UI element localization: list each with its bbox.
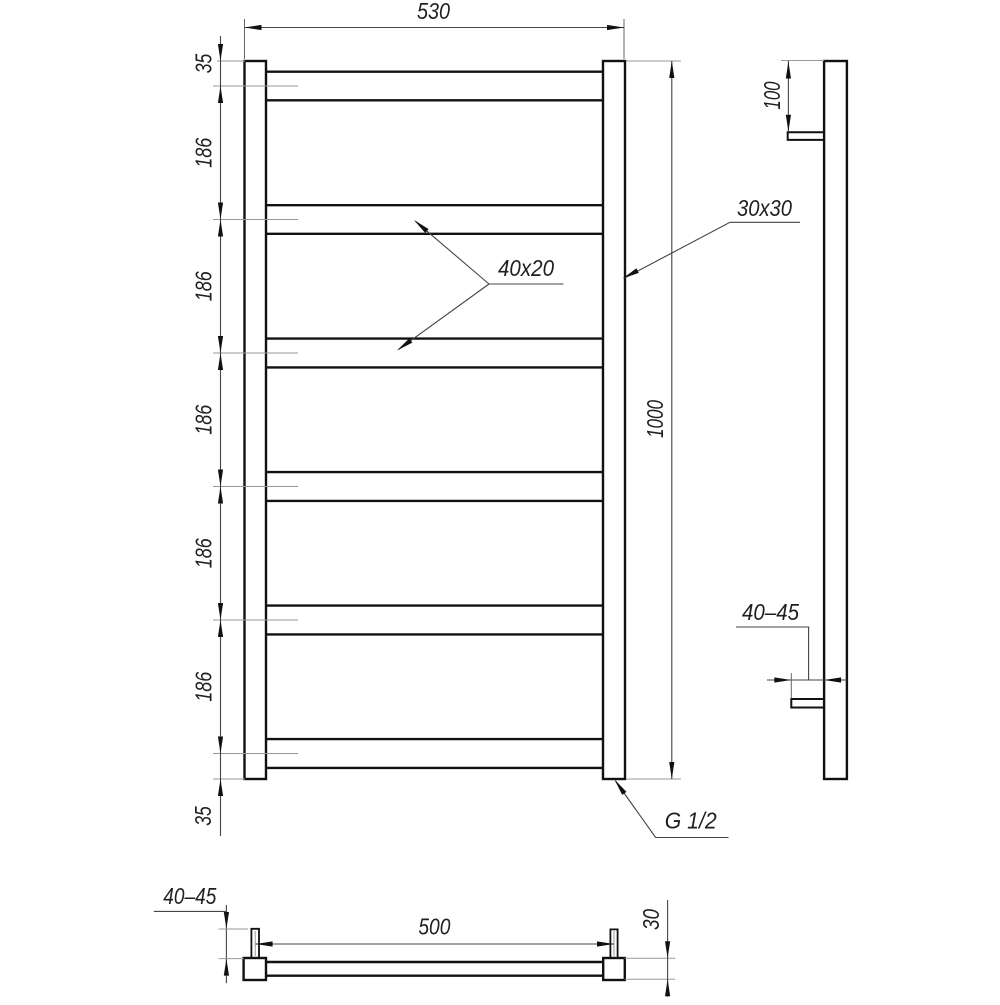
svg-text:35: 35 bbox=[190, 806, 216, 826]
svg-text:40–45: 40–45 bbox=[163, 883, 216, 909]
svg-text:500: 500 bbox=[418, 914, 450, 940]
svg-text:G 1/2: G 1/2 bbox=[665, 808, 717, 834]
svg-text:186: 186 bbox=[191, 138, 217, 168]
svg-text:530: 530 bbox=[417, 0, 450, 24]
svg-text:186: 186 bbox=[191, 672, 217, 702]
svg-text:186: 186 bbox=[191, 271, 217, 301]
svg-text:40x20: 40x20 bbox=[498, 255, 554, 281]
svg-text:186: 186 bbox=[191, 538, 217, 568]
svg-text:100: 100 bbox=[759, 81, 785, 109]
svg-text:35: 35 bbox=[191, 54, 217, 74]
svg-text:40–45: 40–45 bbox=[742, 599, 799, 625]
svg-text:1000: 1000 bbox=[642, 400, 668, 438]
svg-text:186: 186 bbox=[191, 405, 217, 435]
svg-text:30x30: 30x30 bbox=[737, 195, 792, 221]
svg-text:30: 30 bbox=[638, 909, 664, 930]
